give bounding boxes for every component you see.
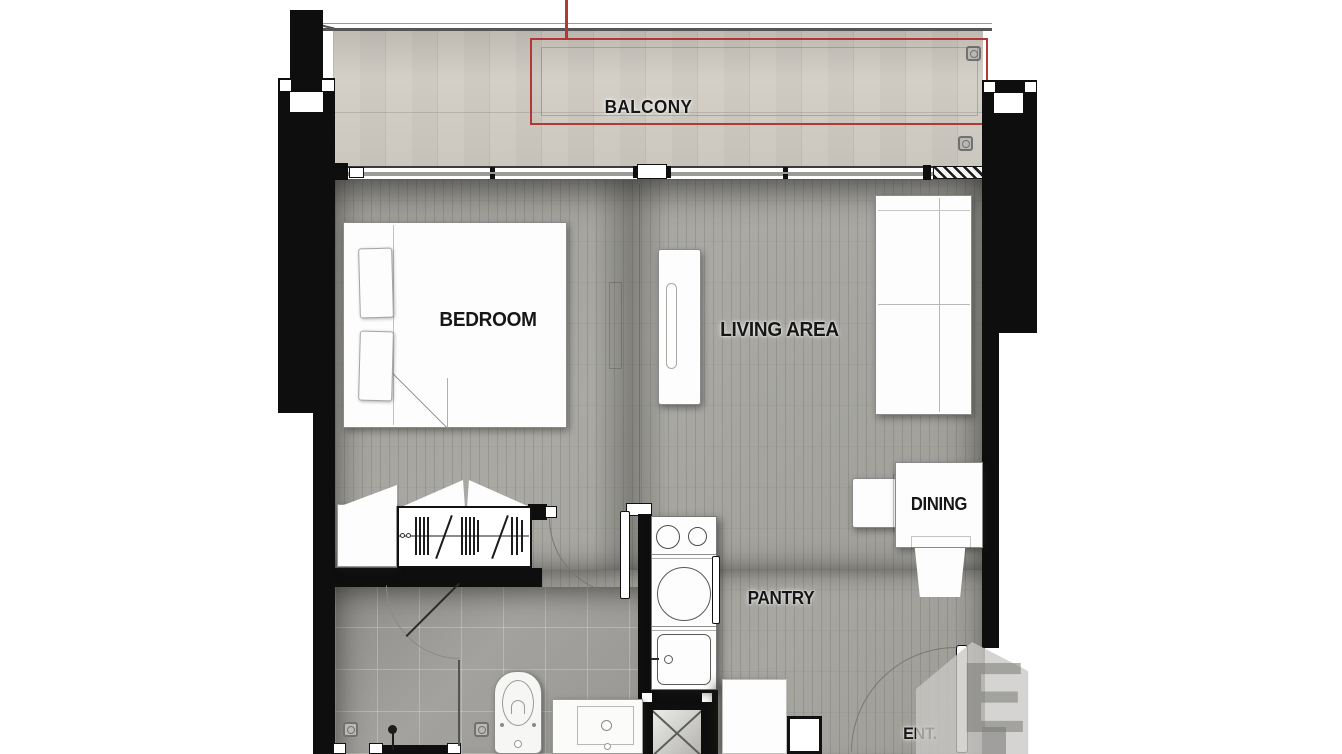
bedroom-label: BEDROOM	[431, 309, 545, 332]
shower-mixer-stem	[392, 733, 394, 750]
window-mullion-icon	[488, 166, 497, 180]
sofa-seat-line	[878, 304, 970, 305]
toilet-dot	[500, 723, 504, 727]
pillow	[358, 248, 394, 319]
washing-machine-icon	[657, 567, 711, 621]
pillow	[358, 331, 394, 402]
hanger-icon	[477, 520, 479, 552]
counter-divider	[652, 626, 716, 627]
counter-divider	[652, 558, 716, 559]
wall-right-pillar	[982, 80, 1037, 333]
tv-console	[658, 249, 701, 405]
hanger-icon	[465, 517, 467, 555]
watermark-logo: E	[916, 642, 1038, 754]
wall-cap	[369, 743, 383, 754]
shower-glass-line	[458, 660, 460, 746]
vanity-dot	[604, 743, 611, 750]
wall-left-lower	[313, 413, 335, 754]
hanger-icon	[511, 517, 513, 555]
shaft-wall-right	[701, 710, 718, 754]
stove-burner-icon	[656, 525, 680, 549]
sofa	[875, 195, 972, 415]
hanger-icon	[469, 517, 471, 555]
dining-label: DINING	[899, 494, 978, 515]
shaft-duct	[653, 710, 701, 754]
wall-cap	[280, 80, 291, 91]
sofa-back-line	[939, 198, 940, 412]
rail-end-ring	[400, 533, 405, 538]
cabinet-box	[787, 716, 822, 754]
wall-notch	[994, 93, 1023, 113]
vanity	[552, 699, 643, 754]
balcony-edge-line-inner	[318, 28, 992, 31]
faucet-icon	[651, 658, 659, 660]
watermark-letter: E	[960, 648, 1027, 748]
partition-ghost-outline	[609, 282, 622, 369]
pantry-label: PANTRY	[738, 588, 824, 609]
dining-chair	[852, 478, 897, 528]
wardrobe-rail-unit	[397, 506, 532, 568]
wall-cap	[322, 80, 334, 91]
wall-cap	[333, 743, 346, 754]
dining-chair-outline	[911, 536, 971, 549]
window-slider-end	[666, 166, 671, 178]
floor-drain-icon	[474, 722, 489, 737]
kitchen-sink	[657, 634, 711, 685]
living-area-label: LIVING AREA	[715, 319, 843, 342]
window-right-post	[923, 165, 931, 180]
wall-cap	[984, 82, 995, 92]
hanger-icon	[491, 515, 509, 559]
window-end-post	[333, 163, 348, 180]
wall-notch	[290, 92, 323, 112]
wardrobe-cabinet	[337, 504, 397, 567]
hanger-icon	[521, 520, 523, 552]
hanger-icon	[516, 517, 518, 555]
counter-divider	[652, 630, 716, 631]
window-slider-end	[633, 166, 638, 178]
window-mullion-icon	[781, 166, 790, 180]
toilet	[494, 671, 542, 754]
counter-divider	[652, 554, 716, 555]
partition-track-line	[639, 184, 640, 504]
sink-drain-icon	[664, 655, 673, 664]
wall-left-upper	[278, 78, 335, 413]
wall-left-column	[290, 10, 323, 85]
hanger-icon	[461, 517, 463, 555]
hanger-icon	[427, 517, 429, 555]
toilet-flush-icon	[514, 740, 522, 748]
bed-fold-edge	[447, 378, 448, 427]
toilet-seat-mark	[511, 700, 525, 714]
toilet-dot	[532, 723, 536, 727]
balcony-drain-icon	[958, 136, 973, 151]
hanger-icon	[415, 517, 417, 555]
wall-cap	[1025, 82, 1036, 92]
hanger-icon	[419, 517, 421, 555]
kitchen-counter	[651, 516, 717, 690]
floor-plan: BEDROOM LIVING AREA	[0, 0, 1342, 754]
window-frame-piece	[349, 167, 364, 178]
bed-fold-line	[391, 372, 448, 429]
counter-end-trim	[712, 556, 720, 624]
window-slider-piece	[637, 164, 667, 179]
door-jamb-cap	[545, 506, 557, 518]
hanger-icon	[423, 517, 425, 555]
balcony-label: BALCONY	[599, 97, 699, 118]
rail-end-ring	[406, 533, 411, 538]
dining-chair	[912, 548, 968, 597]
wall-cap	[701, 692, 713, 703]
fridge	[722, 679, 787, 754]
annotation-leader-line	[565, 0, 568, 40]
window-hatched-sill	[933, 166, 983, 179]
bed-headboard-line	[393, 225, 394, 425]
balcony-edge-line-outer	[320, 23, 992, 24]
vanity-drain-icon	[601, 720, 612, 731]
wall-kitchen-left	[638, 514, 652, 692]
hanger-icon	[473, 517, 475, 555]
floor-drain-icon	[343, 722, 358, 737]
sofa-arm-line	[878, 210, 970, 211]
door-leaf	[620, 511, 630, 599]
wall-right-lower	[982, 333, 999, 648]
tv-slot	[666, 283, 677, 369]
hanger-icon	[435, 515, 453, 559]
stove-burner-icon	[688, 527, 707, 546]
